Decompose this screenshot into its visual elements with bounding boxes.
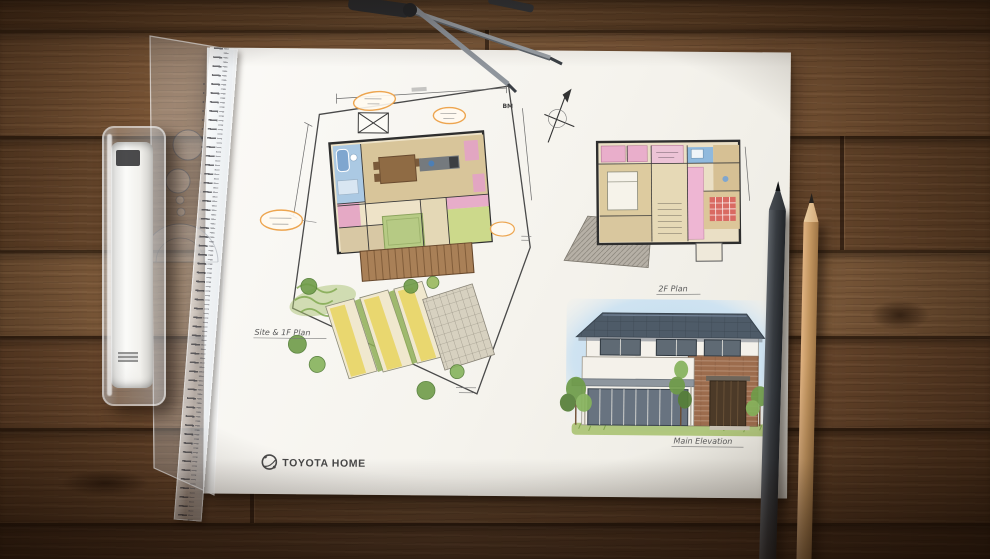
template-circle (166, 169, 190, 193)
chair (374, 174, 381, 182)
plank-seam (840, 136, 844, 250)
label-underline (253, 338, 326, 339)
stove (449, 156, 459, 168)
divider-pivot (403, 3, 417, 17)
house-1f (329, 131, 494, 283)
template-circle (176, 196, 184, 204)
dining-table (379, 155, 417, 184)
elevation-label: Main Elevation (674, 437, 733, 447)
entry-step (710, 426, 750, 430)
windows-2f (600, 339, 740, 356)
garden (286, 275, 496, 400)
logo-dot (264, 456, 267, 459)
floor-plan-2f: 2F Plan (563, 141, 750, 296)
windows-1f (588, 389, 688, 426)
tube-label (116, 150, 140, 166)
divider-tip (550, 58, 562, 64)
room-bedroom-1f (447, 206, 492, 244)
site-plan-label: Site & 1F Plan (254, 328, 310, 337)
bathtub-2f (691, 149, 703, 158)
document-tube (102, 126, 166, 406)
wood-knot (60, 470, 150, 496)
chaise (472, 173, 485, 192)
wood-knot (870, 300, 930, 330)
label-underline (671, 447, 743, 448)
logo-swash (263, 460, 275, 467)
room-bedroom-b (600, 216, 652, 242)
toyota-home-logo: TOYOTA HOME (262, 455, 366, 470)
site-plan-1f: BM Site & 1F Plan (253, 81, 575, 401)
room-bedroom-label-box (651, 145, 683, 163)
dimension-line-2f (745, 147, 749, 201)
divider-tip (508, 84, 516, 92)
lead-holder (488, 0, 535, 13)
drafting-divider (340, 0, 580, 100)
elevation-sketch: Main Elevation (559, 299, 772, 448)
closet (601, 146, 625, 162)
tube-highlight (107, 134, 112, 396)
floor-2-label: 2F Plan (658, 284, 687, 293)
closet (627, 146, 647, 162)
hall-2f (651, 163, 688, 241)
template-circle (177, 208, 185, 216)
bed (607, 172, 637, 210)
divider-leg (412, 6, 508, 84)
crossed-box (358, 113, 388, 133)
template-circle (173, 130, 203, 160)
sink (350, 154, 358, 162)
divider-handle (347, 0, 410, 18)
entry-door (710, 381, 746, 426)
benchmark-label: BM (502, 103, 513, 110)
wood-plank (0, 523, 990, 559)
photo-architectural-sketch-desk: BM Site & 1F Plan (0, 0, 990, 559)
room-sanitary (713, 145, 739, 191)
toilet (722, 176, 728, 182)
sketch-drawing: BM Site & 1F Plan (203, 47, 791, 498)
hall-pink-strip (687, 167, 704, 239)
room-entry (339, 225, 385, 253)
porch (696, 243, 722, 261)
washstand (337, 179, 358, 195)
tube-barcode (118, 352, 138, 362)
logo-dot (273, 466, 276, 469)
sofa (464, 140, 480, 161)
sketch-paper: BM Site & 1F Plan (203, 47, 791, 498)
bathtub (336, 149, 350, 172)
logo-text: TOYOTA HOME (282, 457, 366, 470)
chair (373, 162, 380, 170)
